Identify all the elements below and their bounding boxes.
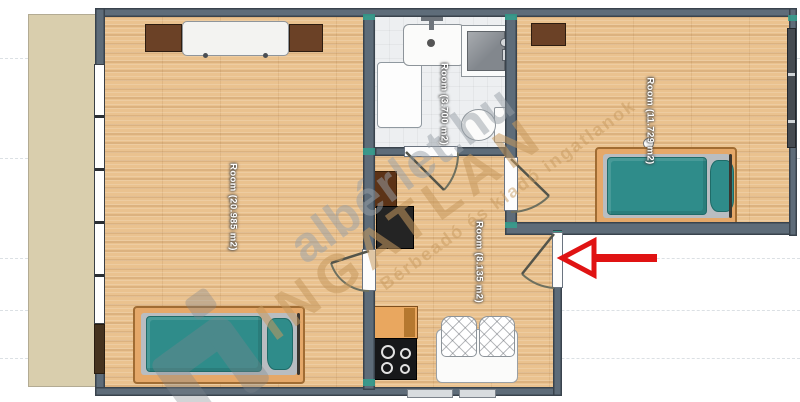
faucet-stem <box>429 20 434 30</box>
wall-living-hall <box>363 14 375 390</box>
sofa-cushion-right <box>479 316 515 357</box>
window-left-icon <box>94 64 105 324</box>
bed-living-headboard <box>297 313 300 375</box>
bed-living-blanket <box>146 316 262 372</box>
wall-top <box>95 8 797 17</box>
wall-joint <box>505 14 517 20</box>
wall-joint <box>363 379 375 386</box>
room-label-bedroom: Room (11.729 m2) <box>645 77 656 164</box>
floorplan-canvas: albérlet.hu INGATLAN Bérbeadó és kiadó i… <box>0 0 800 402</box>
room-label-bathroom: Room (3.700 m2) <box>439 63 450 145</box>
bed-bedroom-blanket <box>607 157 707 215</box>
burner <box>400 348 411 359</box>
door-entrance <box>552 232 563 288</box>
shower-icon <box>461 25 511 77</box>
bed-living-frame <box>133 306 305 384</box>
balcony <box>28 14 96 387</box>
table-icon <box>531 23 566 46</box>
burner <box>400 364 410 374</box>
sink-drain <box>427 39 435 47</box>
toilet-icon <box>461 109 496 141</box>
washing-machine-icon <box>377 62 422 128</box>
wall-joint <box>363 14 375 20</box>
desk-table-icon <box>376 206 414 249</box>
kitchen-counter-side <box>404 308 415 337</box>
wall-joint <box>505 222 517 228</box>
bed-living-pillow <box>267 318 293 370</box>
bed-bedroom-headboard <box>729 154 732 218</box>
door-living-hall <box>362 249 376 291</box>
window-right-icon <box>787 28 796 148</box>
sofa-cushion-left <box>441 316 477 357</box>
room-label-hall: Room (8.135 m2) <box>474 221 485 303</box>
burner <box>381 362 393 374</box>
kitchen-counter-icon <box>374 306 418 339</box>
shower-tray <box>467 31 505 71</box>
nightstand-left-icon <box>145 24 182 52</box>
room-label-living: Room (20.985 m2) <box>228 163 239 251</box>
nightstand-right-icon <box>289 24 323 52</box>
window-bottom-left-icon <box>407 389 453 398</box>
bed-bedroom-frame <box>595 147 737 227</box>
door-bathroom <box>404 146 458 157</box>
wall-joint <box>788 15 797 21</box>
window-bottom-right-icon <box>459 389 496 398</box>
cooktop-icon <box>374 338 417 380</box>
door-bedroom <box>504 157 518 211</box>
wall-bedroom-bottom <box>505 222 797 235</box>
dresser-icon <box>182 21 289 56</box>
burner <box>381 345 395 359</box>
balcony-door-icon <box>94 324 105 374</box>
wall-joint <box>363 148 375 155</box>
